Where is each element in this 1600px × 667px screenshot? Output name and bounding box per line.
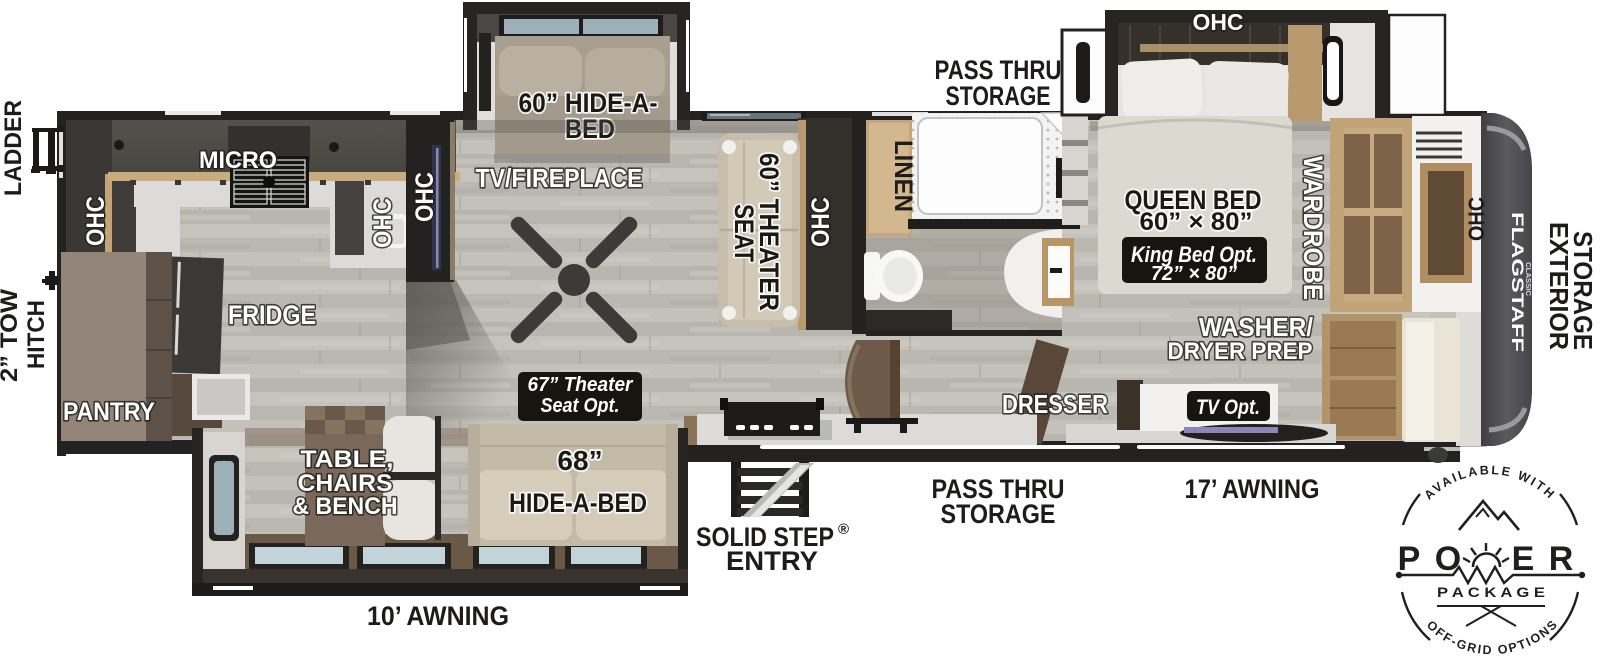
svg-text:OFF-GRID OPTIONS: OFF-GRID OPTIONS xyxy=(1424,617,1561,658)
svg-text:DRYER PREP: DRYER PREP xyxy=(1168,338,1313,365)
svg-text:OHC: OHC xyxy=(1193,9,1244,35)
svg-text:67” Theater: 67” Theater xyxy=(528,374,634,396)
svg-text:TV Opt.: TV Opt. xyxy=(1196,396,1260,419)
svg-text:R: R xyxy=(1549,540,1574,578)
svg-text:AVAILABLE WITH: AVAILABLE WITH xyxy=(1422,463,1559,502)
svg-text:OHC: OHC xyxy=(807,197,835,247)
svg-text:2” TOW: 2” TOW xyxy=(0,289,23,382)
svg-text:MICRO: MICRO xyxy=(199,147,277,174)
svg-text:P A C K A G E: P A C K A G E xyxy=(1437,584,1545,600)
svg-text:WARDROBE: WARDROBE xyxy=(1298,156,1328,300)
svg-text:OHC: OHC xyxy=(82,196,110,246)
svg-text:TV/FIREPLACE: TV/FIREPLACE xyxy=(476,163,643,193)
svg-text:68”: 68” xyxy=(557,445,602,476)
svg-text:TABLE,: TABLE, xyxy=(301,446,394,473)
svg-text:72” × 80”: 72” × 80” xyxy=(1151,263,1237,285)
svg-text:60” × 80”: 60” × 80” xyxy=(1140,208,1253,236)
svg-text:STORAGE: STORAGE xyxy=(941,499,1056,529)
svg-text:FRIDGE: FRIDGE xyxy=(228,300,316,330)
svg-text:E: E xyxy=(1512,540,1535,578)
svg-text:CLASSIC: CLASSIC xyxy=(1524,262,1531,296)
svg-text:P: P xyxy=(1398,540,1421,578)
svg-text:STORAGE: STORAGE xyxy=(946,81,1051,111)
svg-text:O: O xyxy=(1435,540,1461,578)
svg-text:& BENCH: & BENCH xyxy=(293,493,398,520)
svg-text:OHC: OHC xyxy=(1464,197,1489,241)
svg-text:ENTRY: ENTRY xyxy=(726,546,818,576)
svg-text:LINEN: LINEN xyxy=(889,140,917,212)
svg-text:OHC: OHC xyxy=(411,172,439,222)
svg-text:17’ AWNING: 17’ AWNING xyxy=(1185,474,1320,504)
svg-text:10’ AWNING: 10’ AWNING xyxy=(367,601,509,631)
svg-text:Seat Opt.: Seat Opt. xyxy=(541,395,620,417)
svg-text:DRESSER: DRESSER xyxy=(1002,389,1108,419)
svg-text:®: ® xyxy=(838,521,849,538)
svg-text:HIDE-A-BED: HIDE-A-BED xyxy=(509,488,647,518)
svg-text:LADDER: LADDER xyxy=(0,100,27,196)
svg-text:SEAT: SEAT xyxy=(729,204,759,262)
svg-text:PANTRY: PANTRY xyxy=(63,398,155,426)
svg-text:OHC: OHC xyxy=(369,198,397,248)
svg-text:HITCH: HITCH xyxy=(23,300,50,369)
svg-text:STORAGE: STORAGE xyxy=(1568,231,1598,350)
